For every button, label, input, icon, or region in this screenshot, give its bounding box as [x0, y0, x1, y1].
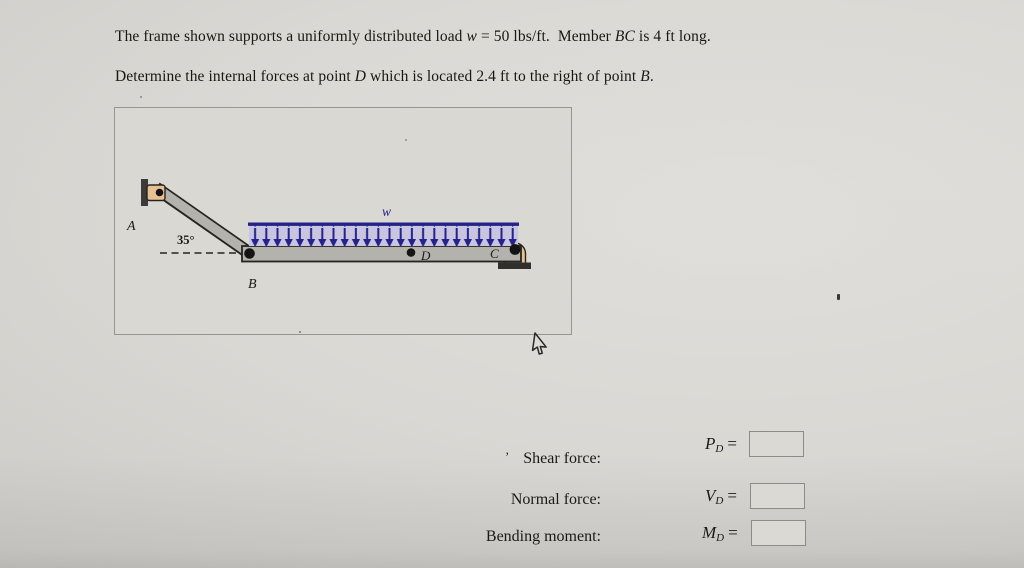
bending-moment-label: Bending moment: — [471, 528, 601, 546]
point-b-pin — [244, 248, 255, 259]
label-c: C — [490, 246, 499, 261]
angle-label: 35° — [177, 233, 195, 247]
problem-statement-line2: Determine the internal forces at point D… — [115, 68, 654, 86]
vd-input[interactable] — [750, 483, 805, 509]
photo-speck — [837, 294, 840, 300]
pin-support-a-icon — [141, 179, 165, 206]
md-symbol: MD= — [702, 523, 738, 544]
label-a: A — [126, 219, 136, 234]
label-b: B — [248, 277, 257, 292]
member-ab — [156, 188, 252, 255]
point-d-marker — [407, 248, 416, 257]
problem-statement-line1: The frame shown supports a uniformly dis… — [115, 28, 711, 46]
frame-diagram: 35° w A B C — [115, 108, 571, 334]
pd-symbol: PD= — [705, 434, 737, 455]
photo-speck — [405, 139, 407, 141]
md-input[interactable] — [751, 520, 806, 546]
photo-speck — [299, 331, 301, 333]
pd-input[interactable] — [749, 431, 804, 457]
frame-diagram-panel: 35° w A B C — [114, 107, 572, 335]
load-w-label: w — [382, 204, 391, 219]
beam-bc — [242, 246, 521, 262]
vd-symbol: VD= — [705, 486, 737, 507]
mouse-cursor-icon — [530, 331, 550, 357]
shear-force-label: Shear force: — [471, 450, 601, 468]
label-d: D — [420, 248, 431, 263]
normal-force-label: Normal force: — [471, 491, 601, 509]
distributed-load — [248, 223, 519, 247]
point-c-pin — [510, 244, 521, 255]
photo-speck — [140, 96, 142, 98]
